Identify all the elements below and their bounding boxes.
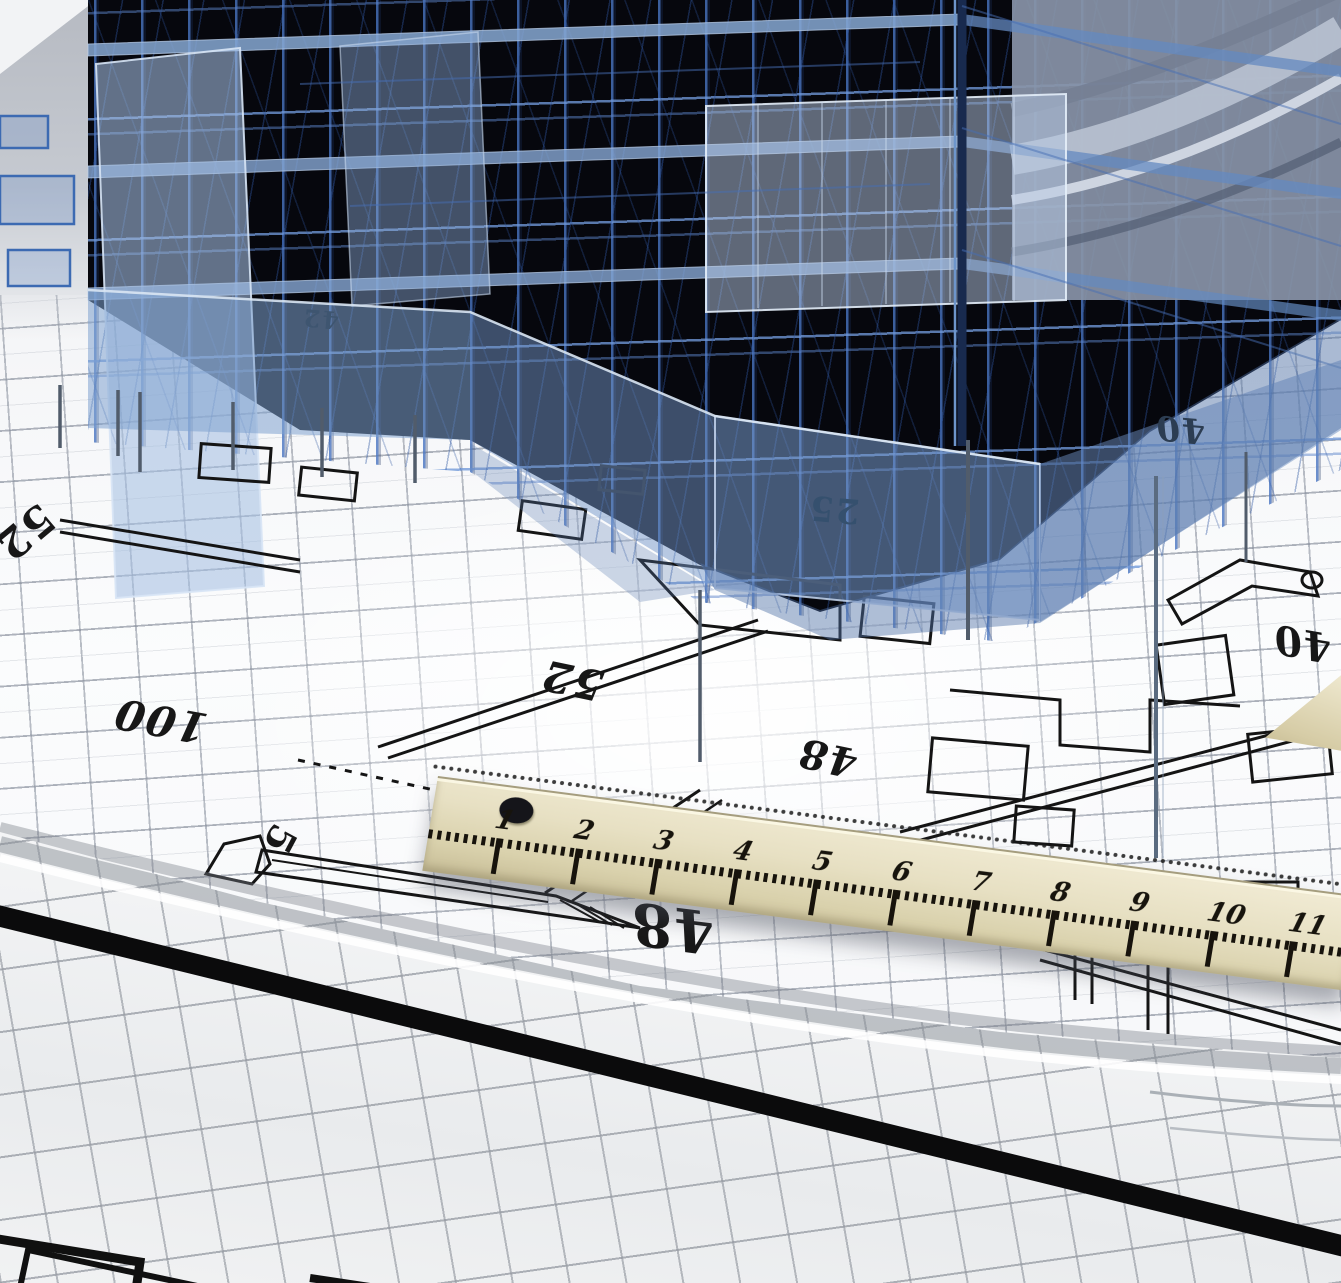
ruler-number: 4 — [730, 835, 757, 868]
ruler-number: 3 — [650, 825, 677, 858]
ruler-number: 2 — [571, 814, 598, 847]
ruler-number: 8 — [1047, 876, 1074, 909]
plan-number: 42 — [301, 305, 340, 332]
ruler-number: 9 — [1126, 887, 1153, 920]
architectural-scene: 52 100 52 48 40 40 25 42 5 48 7 — [0, 0, 1341, 1283]
ruler-number: 11 — [1285, 907, 1331, 942]
ruler-number: 10 — [1204, 897, 1250, 932]
ruler-number: 5 — [809, 845, 836, 878]
ruler-number: 7 — [968, 866, 995, 899]
ruler-number: 6 — [888, 856, 915, 889]
plan-number: 40 — [1272, 617, 1332, 668]
deck-left — [88, 290, 470, 440]
roll-plan-fragments — [0, 1236, 470, 1283]
plan-number: 25 — [807, 490, 861, 528]
plan-number: 40 — [1153, 409, 1207, 448]
ruler-number: 1 — [492, 804, 519, 837]
